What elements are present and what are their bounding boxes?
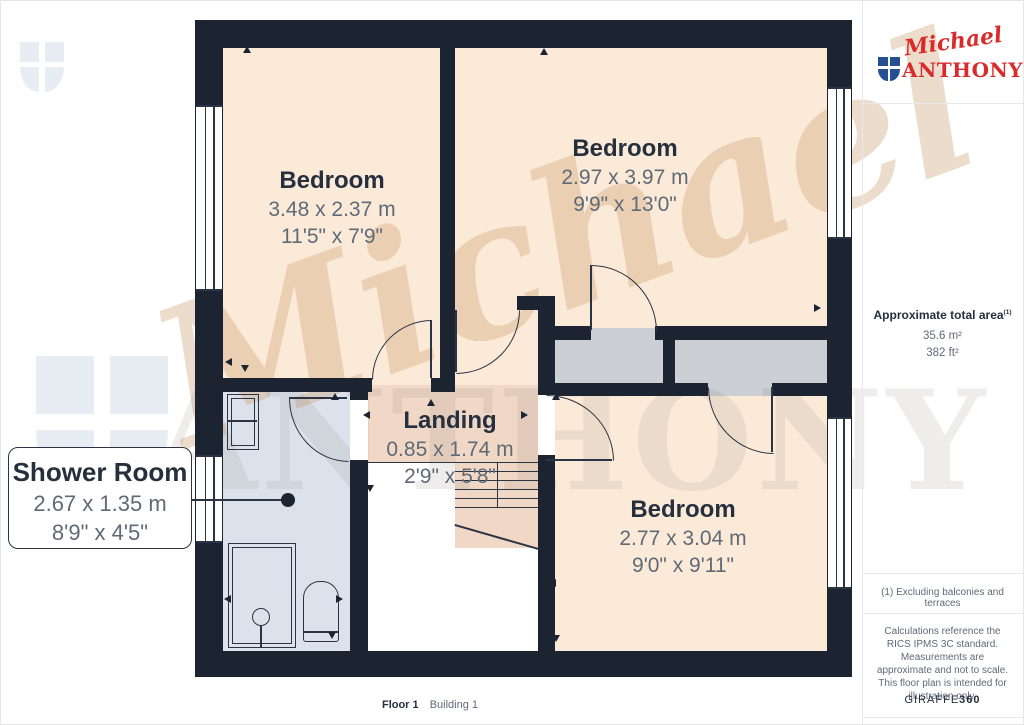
wall [440, 296, 455, 310]
dimension-arrow [552, 635, 560, 642]
sidebar-divider [862, 717, 1023, 718]
storage-left-area [555, 340, 663, 383]
wall [440, 20, 455, 392]
disclaimer-text: Calculations reference the RICS IPMS 3C … [872, 625, 1013, 703]
watermark-shield-small-icon [20, 42, 64, 92]
dimension-arrow [549, 579, 556, 587]
dimension-arrow [814, 304, 821, 312]
dimension-arrow [331, 393, 339, 400]
dimension-arrow [225, 358, 232, 366]
sidebar-divider [862, 613, 1023, 614]
sidebar-divider [862, 573, 1023, 574]
total-area-title: Approximate total area [874, 308, 1004, 322]
room-name: Bedroom [232, 166, 432, 196]
agency-logo-name-text: ANTHONY [902, 60, 1008, 80]
room-name: Landing [358, 406, 542, 436]
floorplan-page: Michael ANTHONY [0, 0, 1024, 725]
storage-right-area [675, 340, 827, 383]
floor-number: Floor 1 [382, 699, 419, 711]
room-name: Shower Room [9, 456, 191, 489]
agency-logo: Michael ANTHONY [874, 30, 1010, 92]
room-size-imperial: 9'0" x 9'11" [583, 552, 783, 579]
floor-label: Floor 1 Building 1 [195, 699, 665, 711]
wall [538, 296, 555, 395]
room-size-imperial: 9'9" x 13'0" [525, 191, 725, 218]
room-size-metric: 2.77 x 3.04 m [583, 525, 783, 552]
window [196, 105, 222, 291]
bedroom-top-left-label: Bedroom 3.48 x 2.37 m 11'5" x 7'9" [232, 166, 432, 250]
sink-basin [231, 398, 255, 446]
shower-drain-icon [252, 608, 270, 626]
bedroom-bottom-right-label: Bedroom 2.77 x 3.04 m 9'0" x 9'11" [583, 495, 783, 579]
sidebar-divider [862, 103, 1023, 104]
stairwell-void [455, 548, 538, 651]
room-size-imperial: 11'5" x 7'9" [232, 223, 432, 250]
shower-room-callout: Shower Room 2.67 x 1.35 m 8'9" x 4'5" [8, 447, 192, 549]
wall [517, 296, 538, 310]
total-area-footnote-marker: (1) [1004, 309, 1012, 316]
dimension-arrow [241, 365, 249, 372]
shower-tray [232, 547, 292, 644]
room-size-metric: 2.67 x 1.35 m [9, 489, 191, 518]
callout-leader-dot [281, 493, 295, 507]
sink-tap-line [227, 420, 257, 422]
room-size-metric: 3.48 x 2.37 m [232, 196, 432, 223]
dimension-arrow [224, 595, 231, 603]
room-name: Bedroom [583, 495, 783, 525]
dimension-arrow [541, 315, 549, 322]
window [828, 417, 851, 589]
dimension-arrow [540, 48, 548, 55]
building-number: Building 1 [430, 699, 478, 711]
stairwell-void [368, 462, 455, 651]
room-size-imperial: 8'9" x 4'5" [9, 518, 191, 547]
room-size-metric: 0.85 x 1.74 m [358, 436, 542, 463]
wall [350, 392, 368, 400]
agency-logo-shield-icon [878, 57, 900, 81]
callout-leader-line [192, 499, 288, 501]
dimension-arrow [427, 399, 435, 406]
wall [195, 651, 852, 677]
giraffe-360-text: 360 [959, 694, 980, 706]
total-area-block: Approximate total area(1) 35.6 m² 382 ft… [866, 308, 1019, 359]
room-size-metric: 2.97 x 3.97 m [525, 164, 725, 191]
wall [555, 326, 591, 340]
bedroom-top-right-label: Bedroom 2.97 x 3.97 m 9'9" x 13'0" [525, 134, 725, 218]
total-area-metric: 35.6 m² [866, 330, 1019, 342]
window [828, 87, 851, 239]
dimension-arrow [328, 632, 336, 639]
giraffe-text: GIRAFFE [904, 694, 959, 706]
landing-label: Landing 0.85 x 1.74 m 2'9" x 5'8" [358, 406, 542, 490]
total-area-imperial: 382 ft² [866, 347, 1019, 359]
wall [555, 383, 708, 396]
wall [431, 378, 455, 392]
wall [195, 378, 372, 392]
sidebar-divider [862, 0, 863, 725]
wall [655, 326, 827, 340]
giraffe360-brand: GIRAFFE360 [866, 694, 1019, 706]
dimension-arrow [552, 393, 560, 400]
wall [772, 383, 827, 396]
area-footnote: (1) Excluding balconies and terraces [866, 587, 1019, 609]
wall [195, 20, 852, 48]
dimension-arrow [336, 595, 343, 603]
dimension-arrow [243, 46, 251, 53]
agency-logo-script-text: Michael [903, 27, 985, 60]
room-name: Bedroom [525, 134, 725, 164]
room-size-imperial: 2'9" x 5'8" [358, 463, 542, 490]
shower-drain-line [260, 626, 262, 648]
